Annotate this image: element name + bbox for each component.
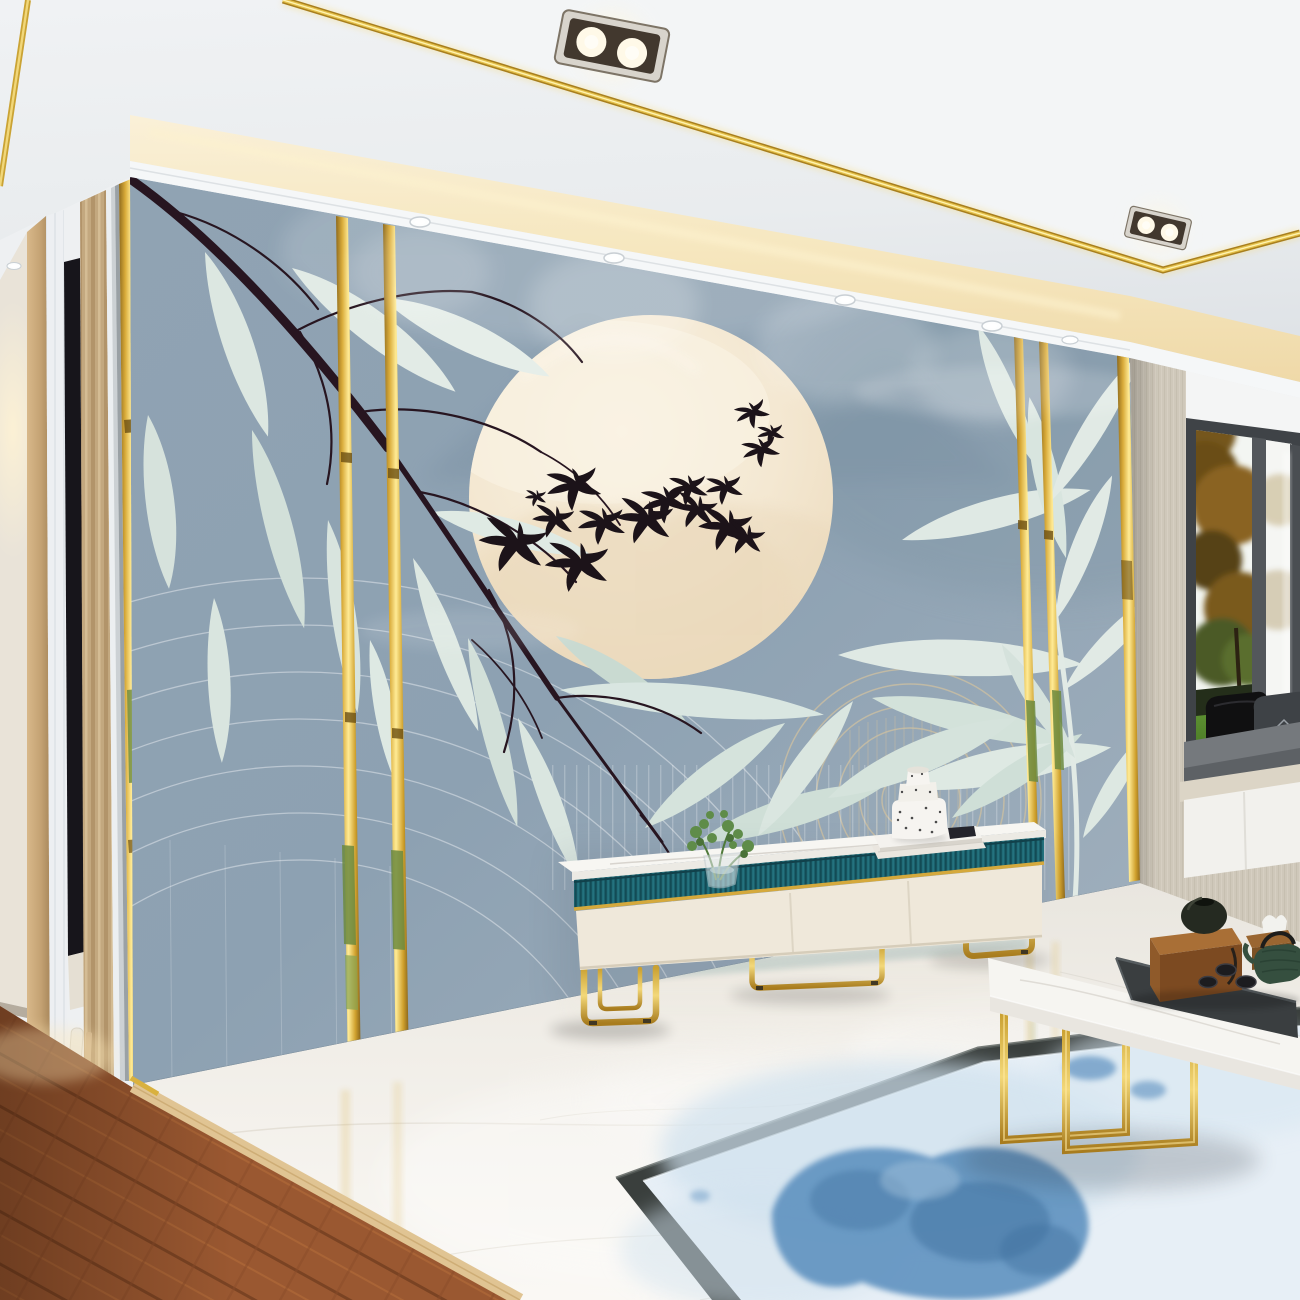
room-render-svg <box>0 0 1300 1300</box>
living-room-render <box>0 0 1300 1300</box>
hallway-downlight <box>7 263 21 270</box>
right-wall <box>1130 358 1300 942</box>
dark-jar <box>1181 898 1227 934</box>
tea-cup <box>1199 977 1217 988</box>
rug-blob-small <box>690 1190 710 1202</box>
door-head <box>64 202 80 262</box>
ceiling-downlight <box>1062 336 1078 344</box>
ceiling-downlight <box>835 295 855 305</box>
ceiling-downlight <box>604 253 624 263</box>
wood-column <box>27 216 50 1080</box>
door-base-wall <box>68 952 86 1010</box>
ceiling-downlight <box>982 321 1002 331</box>
tea-cup <box>1236 976 1256 988</box>
tray-shadow <box>1130 990 1300 1010</box>
glass-vase <box>704 853 740 888</box>
tea-cup <box>1216 964 1236 976</box>
rug-blob-small <box>1130 1081 1166 1099</box>
rug-blob-small <box>1064 1056 1116 1080</box>
ceiling-downlight <box>410 217 430 227</box>
